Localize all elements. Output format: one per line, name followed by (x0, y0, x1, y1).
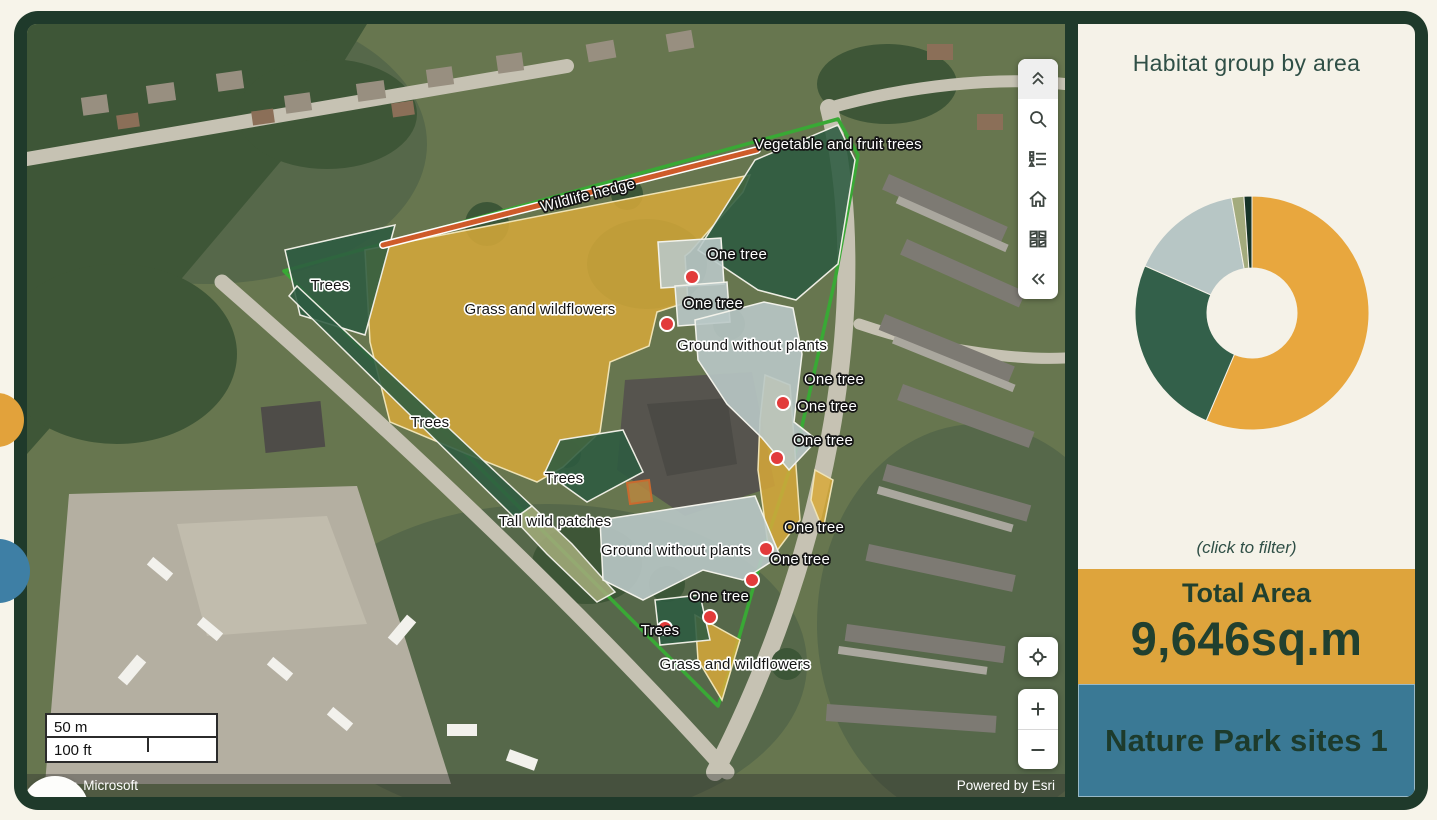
scale-metric-label: 50 m (54, 719, 87, 736)
one-tree-marker[interactable] (776, 396, 790, 410)
habitat-panel: Habitat group by area (click to filter) … (1078, 24, 1415, 797)
powered-by-esri: Powered by Esri (957, 778, 1055, 793)
map-label: Ground without plants (601, 542, 751, 559)
map-label: Trees (311, 277, 350, 294)
home-button[interactable] (1018, 179, 1058, 219)
zoom-out-button[interactable] (1018, 729, 1058, 770)
map-label: One tree (793, 432, 853, 449)
map-label: Trees (545, 470, 584, 487)
map-label: Vegetable and fruit trees (754, 136, 922, 153)
map-canvas[interactable]: Vegetable and fruit treesWildlife hedgeT… (27, 24, 1065, 797)
map-label: One tree (804, 371, 864, 388)
locate-icon (1028, 647, 1048, 667)
habitat-grass-main[interactable] (365, 175, 750, 482)
habitat-donut-chart[interactable] (1078, 24, 1415, 464)
map-label: One tree (784, 519, 844, 536)
map-label: One tree (707, 246, 767, 263)
one-tree-marker[interactable] (685, 270, 699, 284)
map-label: One tree (683, 295, 743, 312)
map-label: One tree (797, 398, 857, 415)
home-icon (1028, 189, 1048, 209)
search-icon (1028, 109, 1048, 129)
map-label: One tree (770, 551, 830, 568)
basemap-gallery-icon (1028, 229, 1048, 249)
search-button[interactable] (1018, 99, 1058, 139)
one-tree-marker[interactable] (745, 573, 759, 587)
one-tree-marker[interactable] (770, 451, 784, 465)
site-card[interactable]: Nature Park sites 1 (1078, 684, 1415, 797)
total-area-card[interactable]: Total Area 9,646sq.m (1078, 569, 1415, 684)
map-toolbar (1018, 59, 1058, 299)
map-label: Trees (411, 414, 450, 431)
one-tree-marker[interactable] (660, 317, 674, 331)
app-frame: Vegetable and fruit treesWildlife hedgeT… (14, 11, 1428, 810)
zoom-control (1018, 689, 1058, 769)
map-label: One tree (689, 588, 749, 605)
scale-bar: 50 m 100 ft (45, 713, 218, 763)
one-tree-marker[interactable] (703, 610, 717, 624)
collapse-panel-button[interactable] (1018, 259, 1058, 299)
habitat-vegetable-patch[interactable] (627, 480, 652, 504)
minus-icon (1028, 740, 1048, 760)
map-label: Trees (641, 622, 680, 639)
map-label: Tall wild patches (499, 513, 612, 530)
map-label: Grass and wildflowers (465, 301, 616, 318)
legend-button[interactable] (1018, 139, 1058, 179)
filter-hint: (click to filter) (1078, 538, 1415, 558)
zoom-in-button[interactable] (1018, 689, 1058, 729)
site-name: Nature Park sites 1 (1105, 723, 1388, 759)
attribution-bar: Maxar, Microsoft Powered by Esri (27, 774, 1065, 797)
map-label: Grass and wildflowers (660, 656, 811, 673)
donut-slices[interactable] (1135, 196, 1369, 430)
plus-icon (1028, 699, 1048, 719)
legend-icon (1028, 149, 1048, 169)
habitat-layer: Vegetable and fruit treesWildlife hedgeT… (27, 24, 1065, 797)
locate-button[interactable] (1018, 637, 1058, 677)
map-label: Ground without plants (677, 337, 827, 354)
total-area-value: 9,646sq.m (1078, 611, 1415, 666)
scale-imperial-label: 100 ft (54, 742, 92, 759)
total-area-label: Total Area (1078, 578, 1415, 609)
chevrons-up-icon (1028, 69, 1048, 89)
collapse-up-button[interactable] (1018, 59, 1058, 99)
basemap-button[interactable] (1018, 219, 1058, 259)
chevrons-left-icon (1028, 269, 1048, 289)
scale-tick (147, 738, 149, 752)
